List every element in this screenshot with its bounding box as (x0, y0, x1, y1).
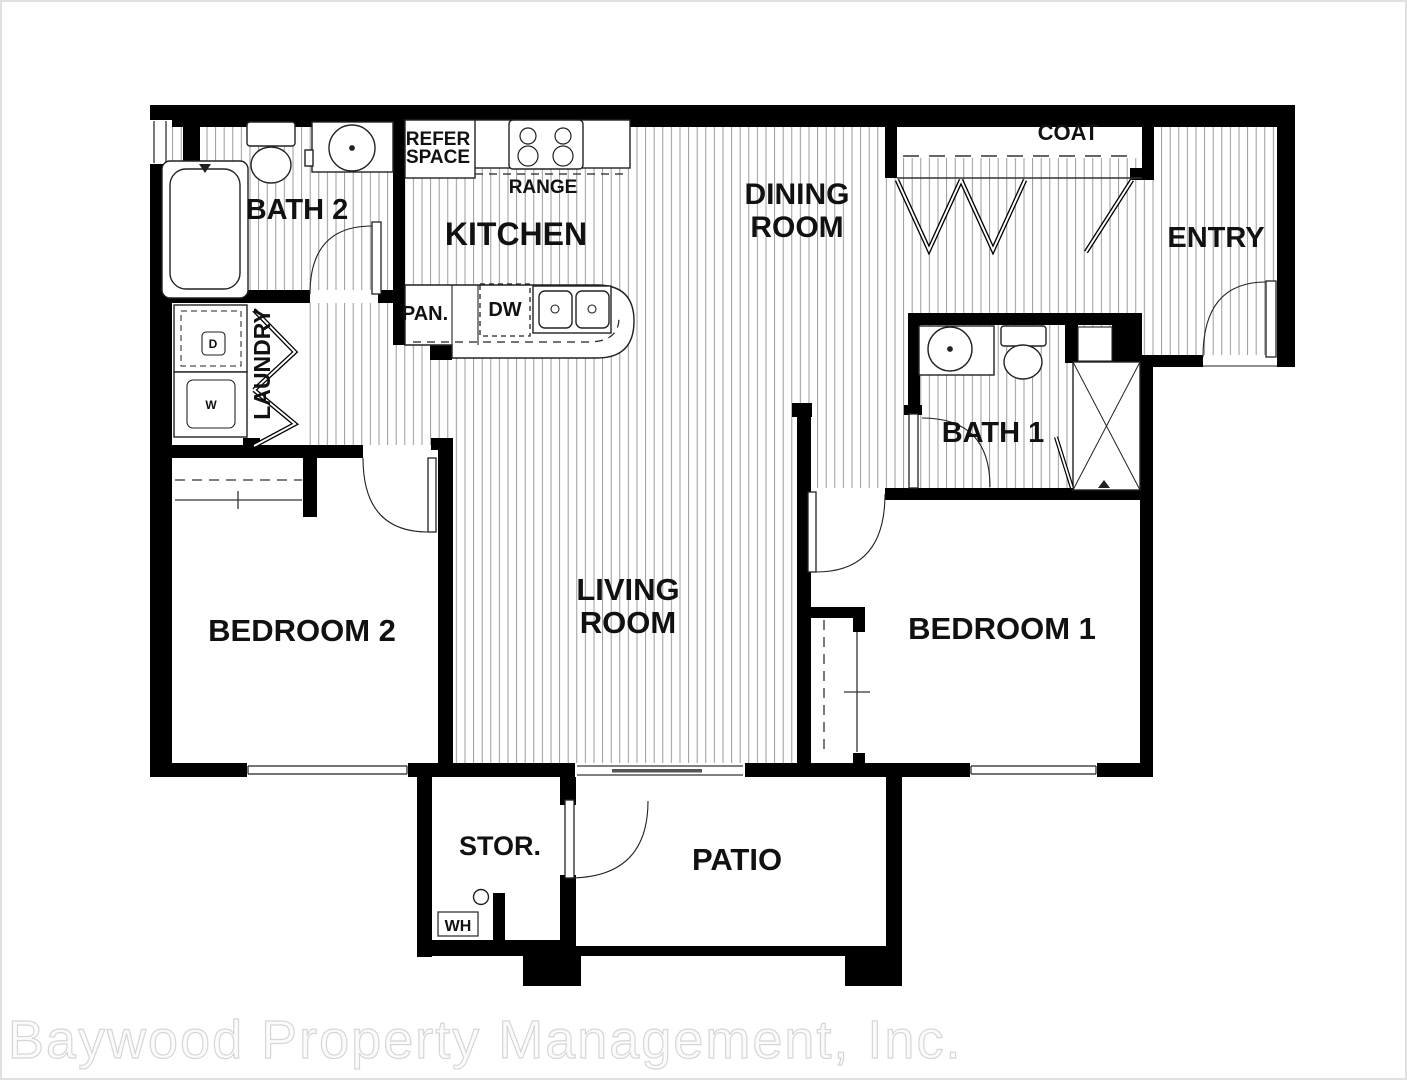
patio-post-left (523, 948, 581, 986)
sink-icon (305, 122, 393, 172)
window-left-wall (150, 120, 172, 164)
label-water-heater: WH (445, 918, 472, 935)
label-entry: ENTRY (1167, 222, 1264, 254)
storage-door (565, 800, 648, 878)
bathtub-icon (162, 161, 248, 298)
water-heater-icon (474, 890, 489, 905)
range-icon (509, 120, 583, 169)
laundry-fixtures (174, 305, 247, 437)
wall-storage-left (417, 763, 432, 957)
wall-bedroom2-closet (303, 458, 317, 517)
window-bedroom1 (970, 763, 1097, 777)
wall-right-lower (1140, 355, 1153, 777)
floor-plan-drawing: BATH 2 KITCHEN DINING ROOM COAT ENTRY LA… (0, 0, 1407, 1080)
label-bath1: BATH 1 (942, 417, 1045, 449)
label-dishwasher: DW (488, 299, 521, 321)
floor-plan-page: BATH 2 KITCHEN DINING ROOM COAT ENTRY LA… (0, 0, 1407, 1080)
label-living-1: LIVING (576, 572, 679, 607)
label-living-2: ROOM (580, 605, 676, 640)
label-bath2: BATH 2 (246, 194, 349, 226)
label-kitchen: KITCHEN (445, 216, 587, 252)
wall-patio-bottom (576, 946, 845, 956)
toilet-icon (1001, 326, 1046, 379)
label-bedroom2: BEDROOM 2 (208, 613, 396, 648)
wall-patio-right (886, 777, 902, 952)
label-patio: PATIO (692, 842, 782, 877)
wall-coat-left (885, 105, 897, 178)
label-dryer: D (209, 337, 218, 351)
label-range: RANGE (509, 177, 578, 198)
wall-bath1-top (908, 313, 1142, 325)
sliding-glass-door (575, 763, 745, 777)
window-bedroom2 (247, 763, 408, 777)
label-bedroom1: BEDROOM 1 (908, 611, 1096, 646)
sink-icon (919, 326, 994, 375)
label-washer: W (205, 398, 217, 412)
watermark-text: Baywood Property Management, Inc. (8, 1010, 962, 1070)
wall-storage-right (560, 875, 576, 945)
label-refer-2: SPACE (406, 147, 470, 168)
wall-bath1-left (908, 313, 920, 413)
label-laundry: LAUNDRY (249, 308, 275, 420)
label-storage: STOR. (459, 831, 541, 861)
label-dining-2: ROOM (750, 211, 843, 244)
label-coat: COAT (1038, 120, 1099, 145)
wall-right-upper (1277, 105, 1295, 367)
wall-bedroom2-living (438, 438, 453, 763)
label-dining-1: DINING (745, 178, 850, 211)
kitchen-sink-icon (533, 286, 611, 333)
wall-living-bedroom1 (797, 403, 811, 763)
label-pantry: PAN. (402, 303, 448, 325)
wall-coat-right (1142, 105, 1154, 168)
